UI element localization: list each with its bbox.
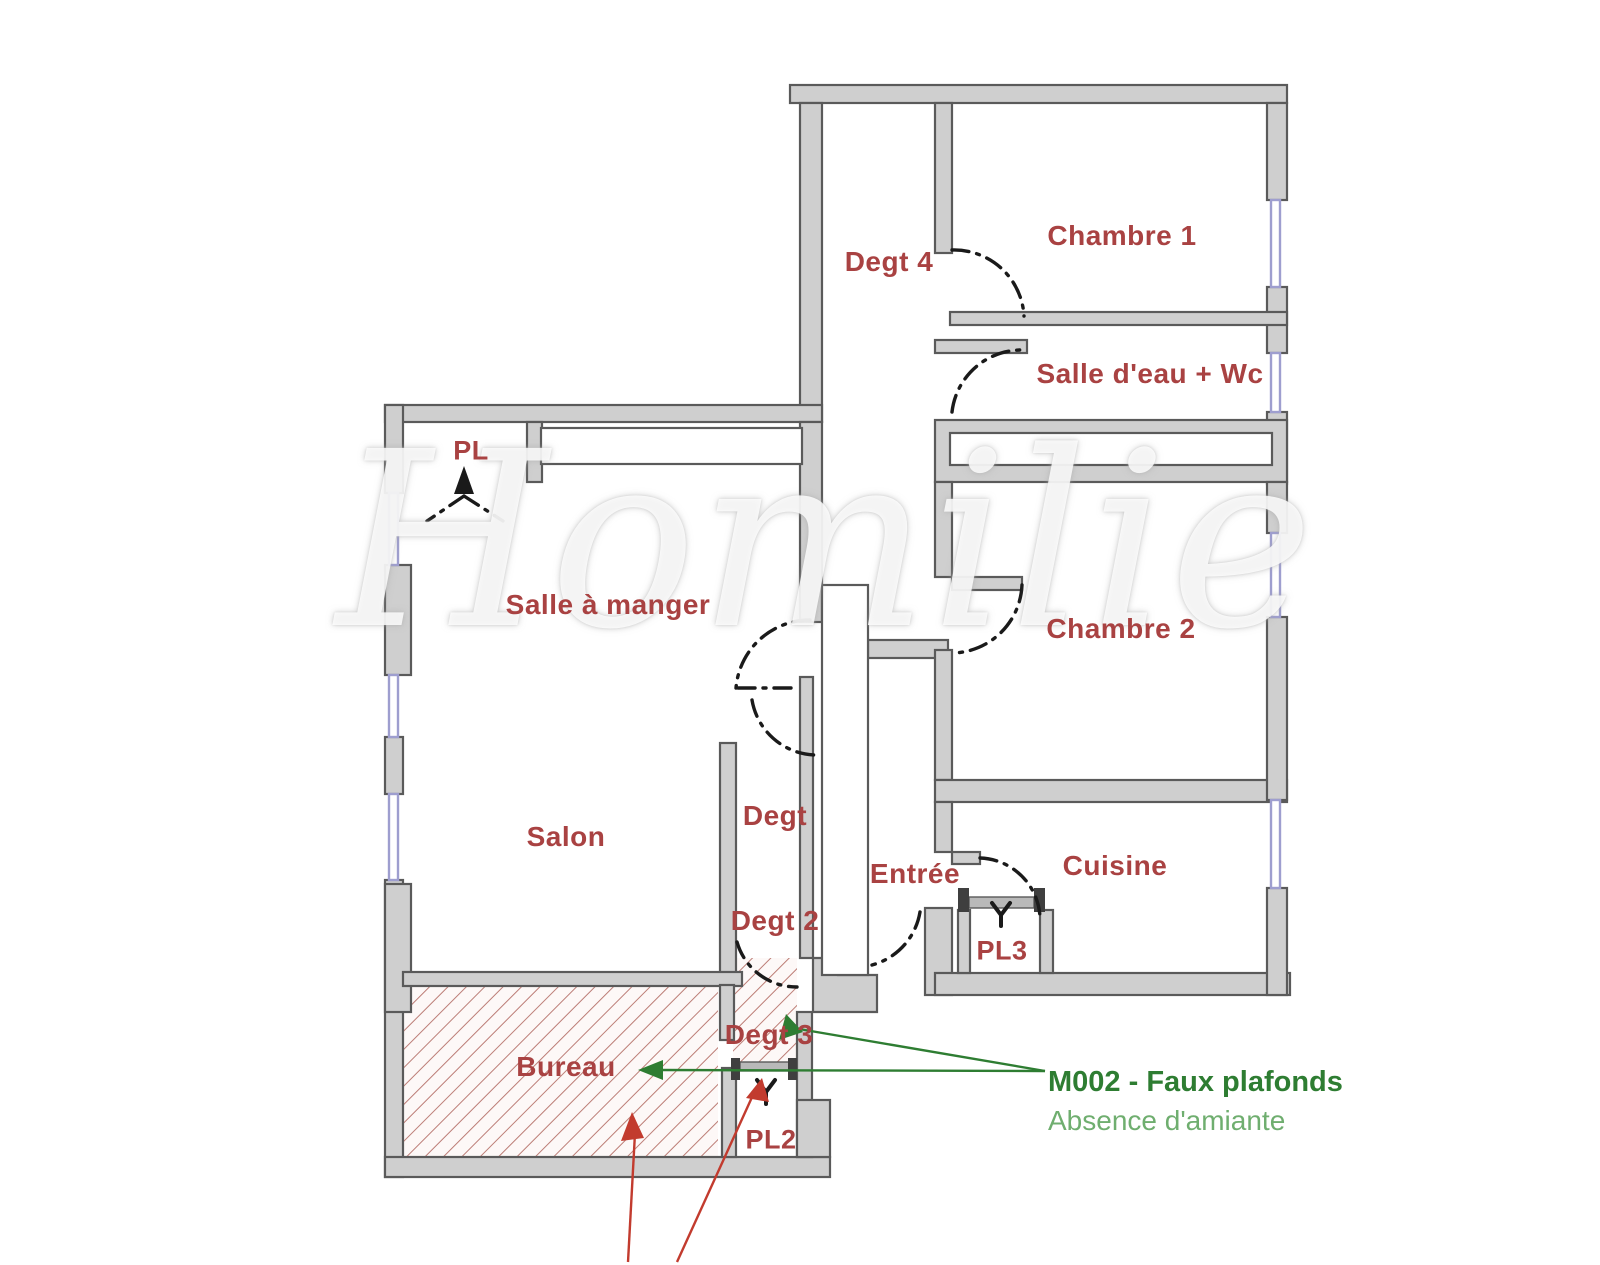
room-label-degt3: Degt 3 [725,1019,814,1051]
annotation-measure-code: M002 - Faux plafonds [1048,1066,1343,1099]
ducts [541,428,1272,975]
room-label-pl3: PL3 [976,936,1027,967]
room-label-salle-a-manger: Salle à manger [506,589,711,621]
floor-plan-page: Homilie PL Salle à manger Degt 4 Chambre… [0,0,1600,1265]
room-label-entree: Entrée [870,858,960,890]
room-label-pl: PL [453,436,489,467]
annotation-result: Absence d'amiante [1048,1105,1285,1137]
room-label-chambre2: Chambre 2 [1046,613,1195,645]
room-label-salon: Salon [527,821,606,853]
room-label-degt2: Degt 2 [731,905,820,937]
room-label-salle-eau-wc: Salle d'eau + Wc [1036,358,1263,390]
room-label-bureau: Bureau [516,1051,615,1083]
room-label-pl2: PL2 [745,1125,796,1156]
room-label-degt: Degt [743,800,807,832]
room-label-cuisine: Cuisine [1063,850,1168,882]
room-label-chambre1: Chambre 1 [1047,220,1196,252]
room-label-degt4: Degt 4 [845,246,934,278]
floor-plan-drawing [0,0,1600,1265]
